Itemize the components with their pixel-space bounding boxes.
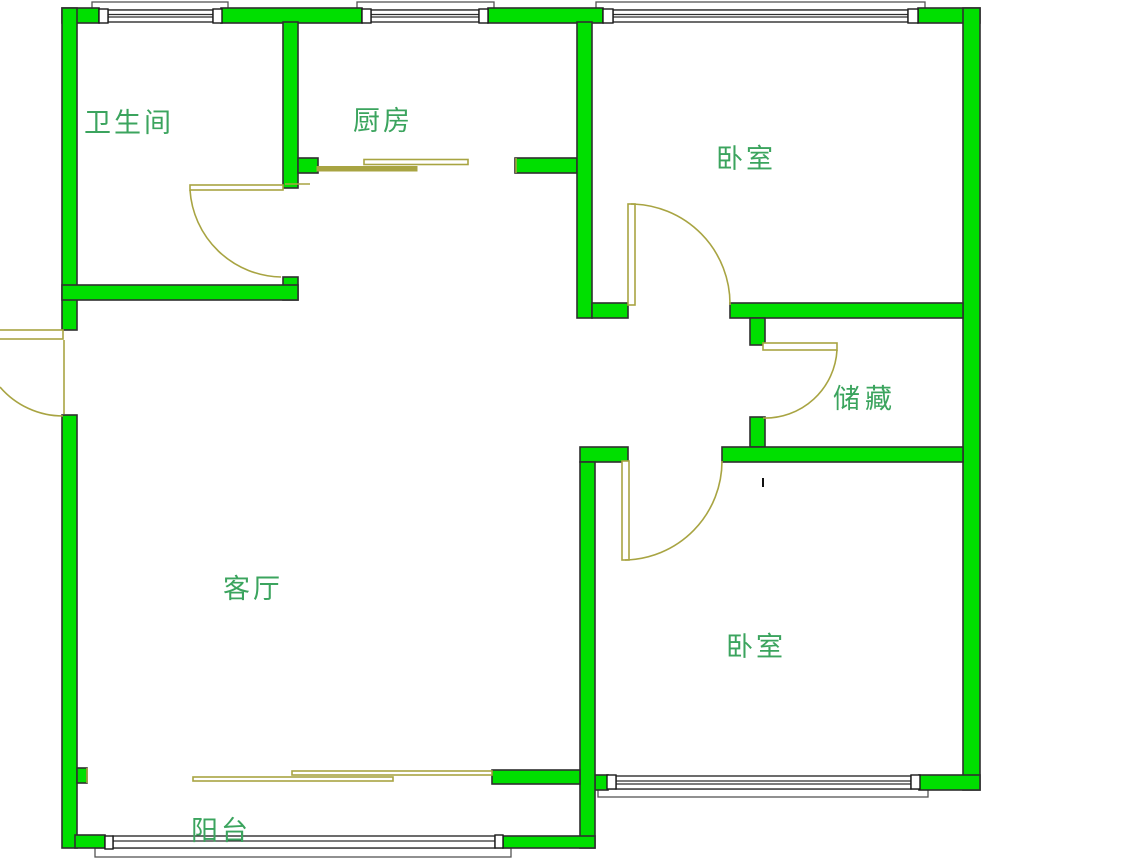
- wall-segment: [730, 303, 963, 318]
- door-leaf: [763, 343, 837, 350]
- wall-segment: [221, 8, 362, 23]
- window-cap: [607, 775, 616, 789]
- bedroom-top-door: [628, 204, 730, 305]
- balcony-sliding-door: [87, 768, 492, 783]
- wall-segment: [750, 417, 765, 447]
- door-swing-arc: [0, 387, 63, 416]
- bedroom-bottom-window: [607, 775, 920, 789]
- window-sill: [598, 789, 928, 797]
- entry-door: [0, 330, 64, 416]
- room-label-bedroom-bottom: 卧室: [726, 633, 786, 663]
- window-sill: [92, 2, 228, 10]
- bathroom-door: [190, 184, 310, 277]
- wall-segment: [283, 22, 298, 188]
- room-label-balcony: 阳台: [191, 817, 251, 847]
- wall-segment: [492, 770, 580, 784]
- room-label-storage: 储藏: [833, 385, 897, 415]
- bathroom-window: [99, 9, 222, 23]
- walls: [62, 8, 980, 848]
- wall-segment: [298, 158, 318, 173]
- wall-segment: [503, 836, 595, 848]
- wall-segment: [595, 775, 608, 790]
- window-sill: [357, 2, 494, 10]
- balcony-window: [105, 835, 503, 849]
- window-cap: [105, 836, 113, 849]
- door-leaf: [0, 330, 63, 339]
- window-cap: [99, 9, 108, 23]
- door-leaf: [190, 185, 283, 190]
- room-label-living-room: 客厅: [223, 575, 283, 605]
- window-sill: [95, 848, 511, 857]
- bedroom-top-window: [603, 9, 918, 23]
- window-sill: [596, 2, 925, 10]
- window-band: [371, 10, 479, 22]
- door-swing-arc: [190, 190, 281, 277]
- door-swing-arc: [631, 204, 730, 305]
- door-swing-arc: [625, 461, 722, 560]
- window-band: [613, 10, 908, 22]
- sliding-door-panel: [364, 160, 468, 165]
- door-leaf: [622, 461, 629, 560]
- window-cap: [479, 9, 488, 23]
- window-band: [113, 836, 495, 848]
- sliding-door-panel: [317, 167, 417, 172]
- window-cap: [908, 9, 918, 23]
- tick-mark: [762, 478, 764, 487]
- storage-door: [763, 343, 837, 418]
- room-label-kitchen: 厨房: [353, 107, 413, 137]
- door-leaf: [628, 204, 635, 305]
- wall-segment: [62, 8, 77, 330]
- sliding-door-panel: [292, 771, 492, 775]
- wall-segment: [62, 415, 77, 848]
- bedroom-bottom-door: [622, 461, 722, 560]
- window-cap: [911, 775, 920, 789]
- wall-segment: [722, 447, 963, 462]
- window-band: [108, 10, 213, 22]
- kitchen-sliding-door: [317, 158, 516, 173]
- wall-segment: [592, 303, 628, 318]
- wall-segment: [515, 158, 577, 173]
- window-cap: [213, 9, 222, 23]
- wall-segment: [919, 775, 980, 790]
- floor-plan: 卫生间 厨房 卧室 储藏 客厅 卧室 阳台: [0, 0, 1145, 862]
- kitchen-window: [362, 9, 488, 23]
- window-band: [616, 776, 911, 789]
- window-cap: [362, 9, 371, 23]
- wall-segment: [580, 447, 628, 462]
- room-label-bedroom-top: 卧室: [716, 145, 776, 175]
- wall-segment: [75, 835, 105, 848]
- sliding-door-panel: [193, 777, 393, 781]
- window-sills: [92, 2, 928, 857]
- door-swing-arc: [763, 350, 837, 418]
- wall-segment: [750, 318, 765, 345]
- wall-segment: [963, 8, 980, 790]
- room-label-bathroom: 卫生间: [84, 109, 174, 139]
- window-cap: [495, 835, 503, 848]
- wall-segment: [77, 768, 87, 783]
- wall-segment: [488, 8, 603, 23]
- wall-segment: [580, 462, 595, 848]
- wall-segment: [577, 22, 592, 318]
- window-cap: [603, 9, 613, 23]
- wall-segment: [62, 285, 298, 300]
